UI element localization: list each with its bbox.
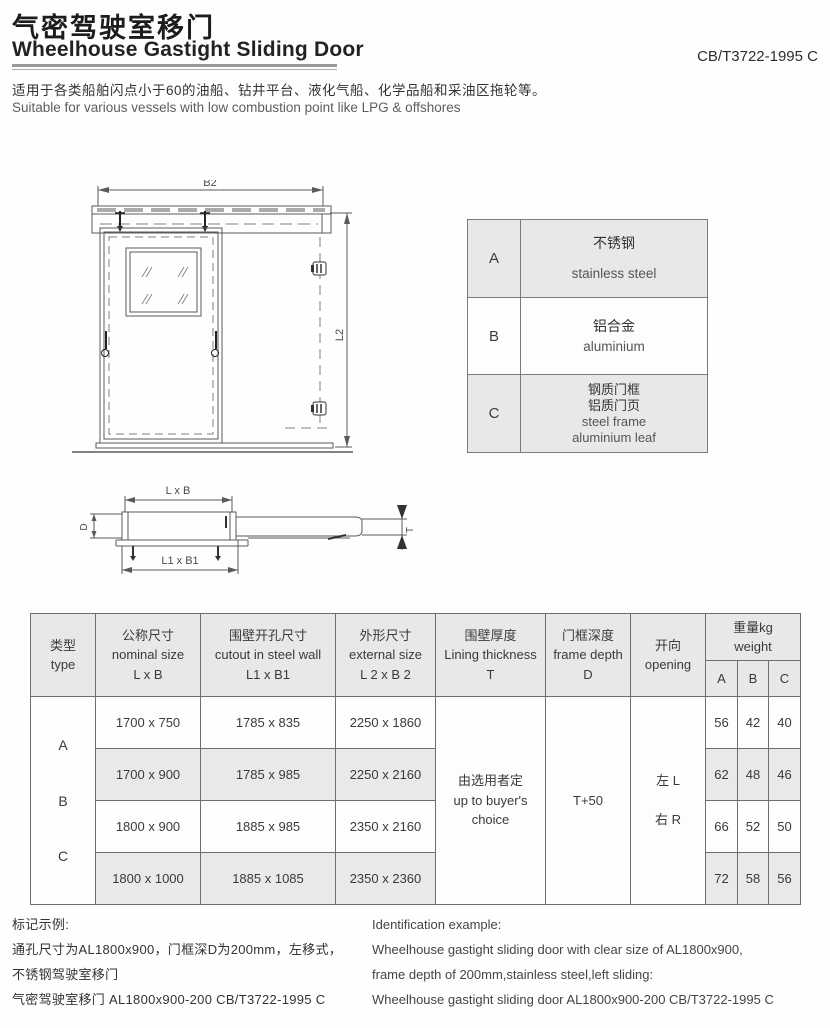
material-name-zh: 钢质门框 铝质门页 [521,382,707,414]
type-letters-cell: A B C [31,697,96,905]
weight-b-value: 48 [738,749,769,801]
technical-drawing: B2 [60,180,460,600]
material-key: A [468,220,521,298]
weight-b-value: 52 [738,801,769,853]
col-header-weight-a: A [706,661,738,697]
weight-a-value: 62 [706,749,738,801]
nominal-size-value: 1700 x 750 [96,697,201,749]
table-row: A B C 1700 x 750 1785 x 835 2250 x 1860 … [31,697,801,749]
wall-cutout-frame [100,228,222,443]
dim-label-lxb: L x B [166,485,191,497]
weight-b-value: 58 [738,853,769,905]
col-header-frame-depth: 门框深度 frame depth D [546,614,631,697]
external-size-value: 2250 x 1860 [336,697,436,749]
nominal-size-value: 1800 x 900 [96,801,201,853]
material-name-en: stainless steel [521,265,707,282]
table-row: A 不锈钢 stainless steel [468,220,708,298]
material-name-zh: 铝合金 [521,318,707,335]
door-handle [102,331,109,357]
col-header-cutout: 围壁开孔尺寸 cutout in steel wall L1 x B1 [201,614,336,697]
cutout-size-value: 1785 x 835 [201,697,336,749]
material-name-en: aluminium [521,338,707,355]
external-size-value: 2250 x 2160 [336,749,436,801]
identification-example-chinese: 标记示例: 通孔尺寸为AL1800x900，门框深D为200mm，左移式， 不锈… [12,912,342,1012]
col-header-external-size: 外形尺寸 external size L 2 x B 2 [336,614,436,697]
material-name-en: steel frame aluminium leaf [521,414,707,446]
table-row: B 铝合金 aluminium [468,298,708,375]
page-title-english: Wheelhouse Gastight Sliding Door [12,38,364,62]
col-header-opening: 开向 opening [631,614,706,697]
weight-a-value: 56 [706,697,738,749]
footer-line: 通孔尺寸为AL1800x900，门框深D为200mm，左移式， [12,937,342,962]
rail-hatch-pattern [97,208,325,212]
frame-depth-value: T+50 [546,697,631,905]
description-english: Suitable for various vessels with low co… [12,100,460,115]
external-size-value: 2350 x 2160 [336,801,436,853]
title-underline-thin [12,69,337,70]
dim-label-d: D [79,523,90,530]
catalog-page: 气密驾驶室移门 Wheelhouse Gastight Sliding Door… [0,0,830,1028]
cutout-size-value: 1885 x 1085 [201,853,336,905]
weight-b-value: 42 [738,697,769,749]
weight-c-value: 40 [769,697,801,749]
frame-plan-body [122,512,236,540]
front-view-drawing: B2 [72,180,353,452]
weight-a-value: 66 [706,801,738,853]
col-header-weight-c: C [769,661,801,697]
title-underline-thick [12,64,337,67]
dimensions-table: 类型 type 公称尺寸 nominal size L x B 围壁开孔尺寸 c… [30,613,801,905]
dim-label-t: T [405,527,416,533]
weight-c-value: 50 [769,801,801,853]
table-row: C 钢质门框 铝质门页 steel frame aluminium leaf [468,375,708,453]
dim-label-l1xb1: L1 x B1 [161,555,198,567]
top-view-drawing: L x B D [79,485,416,574]
material-key: C [468,375,521,453]
dim-label-b2: B2 [203,180,216,189]
wall-clamp-fitting [311,262,326,275]
weight-a-value: 72 [706,853,738,905]
description-chinese: 适用于各类船舶闪点小于60的油船、钻井平台、液化气船、化学品船和采油区拖轮等。 [12,79,546,99]
footer-line: Identification example: [372,912,774,937]
external-size-value: 2350 x 2360 [336,853,436,905]
type-letter: A [58,737,67,753]
door-window [126,248,201,316]
footer-line: 标记示例: [12,912,342,937]
cutout-size-value: 1885 x 985 [201,801,336,853]
col-header-weight: 重量kg weight [706,614,801,661]
weight-c-value: 46 [769,749,801,801]
glass-hatch-marks [142,267,188,304]
weight-c-value: 56 [769,853,801,905]
wall-clamp-fitting [311,402,326,415]
footer-line: 气密驾驶室移门 AL1800x900-200 CB/T3722-1995 C [12,987,342,1012]
dim-label-l2: L2 [334,329,346,341]
footer-line: frame depth of 200mm,stainless steel,lef… [372,962,774,987]
footer-line: Wheelhouse gastight sliding door AL1800x… [372,987,774,1012]
roller-hanger [215,546,221,561]
col-header-nominal-size: 公称尺寸 nominal size L x B [96,614,201,697]
sliding-leaf-plan [236,517,362,536]
opening-value: 左 L 右 R [631,697,706,905]
nominal-size-value: 1800 x 1000 [96,853,201,905]
door-sill [96,443,333,448]
col-header-lining-thickness: 围壁厚度 Lining thickness T [436,614,546,697]
material-key: B [468,298,521,375]
footer-line: 不锈钢驾驶室移门 [12,962,342,987]
footer-line: Wheelhouse gastight sliding door with cl… [372,937,774,962]
col-header-type: 类型 type [31,614,96,697]
nominal-size-value: 1700 x 900 [96,749,201,801]
type-letter: B [58,793,67,809]
col-header-weight-b: B [738,661,769,697]
table-header-row: 类型 type 公称尺寸 nominal size L x B 围壁开孔尺寸 c… [31,614,801,661]
type-letter: C [58,848,68,864]
roller-hanger [130,546,136,561]
materials-table: A 不锈钢 stainless steel B 铝合金 aluminium C … [467,219,708,453]
standard-code: CB/T3722-1995 C [697,48,818,65]
material-name-zh: 不锈钢 [521,235,707,252]
lining-thickness-value: 由选用者定 up to buyer's choice [436,697,546,905]
identification-example-english: Identification example: Wheelhouse gasti… [372,912,774,1012]
cutout-size-value: 1785 x 985 [201,749,336,801]
